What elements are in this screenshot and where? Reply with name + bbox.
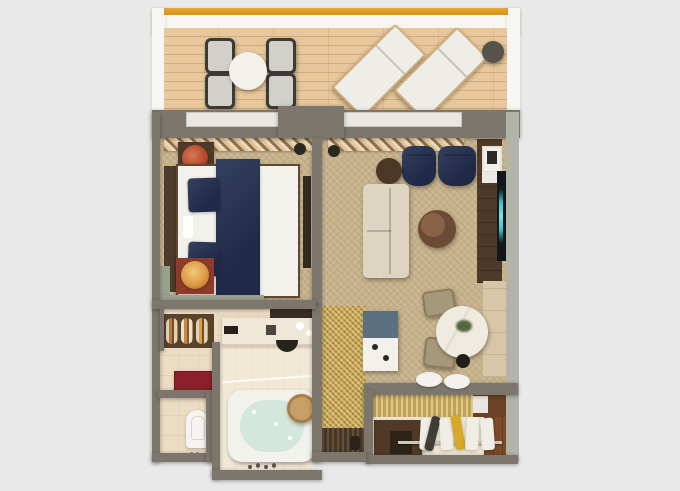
black-stool	[456, 354, 470, 368]
lamp-orange	[181, 261, 209, 289]
entry-door-handle	[350, 436, 360, 450]
balcony-right-wall	[507, 8, 520, 114]
bedroom-wall-light	[294, 143, 306, 155]
living-sliding-door	[342, 112, 462, 127]
tub-fixture	[256, 463, 260, 468]
dome-wall-lamp	[444, 374, 470, 389]
tub-fixture	[272, 463, 276, 468]
left-outer-wall	[152, 112, 160, 462]
corridor-bottom-wall	[312, 452, 366, 462]
armchair	[402, 146, 436, 186]
bedroom-sliding-door	[186, 112, 284, 127]
balcony-chair	[266, 73, 296, 109]
ottoman	[376, 158, 402, 184]
bed-fold	[183, 216, 193, 238]
bedroom-bathroom-wall	[152, 300, 316, 309]
luggage-bench	[374, 420, 422, 456]
faucet	[266, 325, 276, 335]
closet-wallpaper	[371, 394, 473, 417]
wc-bottom-wall	[152, 453, 214, 462]
right-outer-wall	[506, 112, 519, 462]
garment-white	[465, 417, 480, 451]
awning-edge	[164, 8, 508, 15]
toilet	[186, 410, 208, 448]
tub-room-bottom-wall	[212, 470, 322, 480]
corridor-left-wall	[312, 306, 322, 462]
safe-box	[473, 396, 488, 413]
living-entry-wall	[364, 383, 518, 395]
armchair	[438, 146, 476, 186]
shelf-frame-wall	[160, 309, 164, 351]
framed-picture	[482, 146, 502, 173]
facade-wall-pier	[278, 106, 344, 138]
towel-shelf	[162, 314, 214, 348]
floor-plan-canvas	[0, 0, 680, 491]
tub-fixture	[264, 465, 268, 469]
garment-white	[480, 418, 495, 451]
tub-fixture	[248, 465, 252, 469]
dome-wall-lamp	[416, 372, 442, 387]
coffee-table	[418, 210, 456, 248]
entry-bottom-wall	[366, 455, 518, 464]
tub-room-left-wall	[212, 342, 220, 478]
minibar-cabinet	[363, 311, 398, 371]
living-wall-light	[328, 145, 340, 157]
pillow	[187, 177, 220, 212]
bedroom-living-wall	[312, 138, 322, 306]
balcony-side-table	[482, 41, 504, 63]
bed-runner	[216, 159, 260, 298]
dining-table	[436, 306, 488, 358]
balcony-table	[229, 52, 267, 90]
bedroom-wall-tv	[303, 176, 311, 268]
balcony-chair	[266, 38, 296, 74]
sofa	[363, 184, 409, 278]
